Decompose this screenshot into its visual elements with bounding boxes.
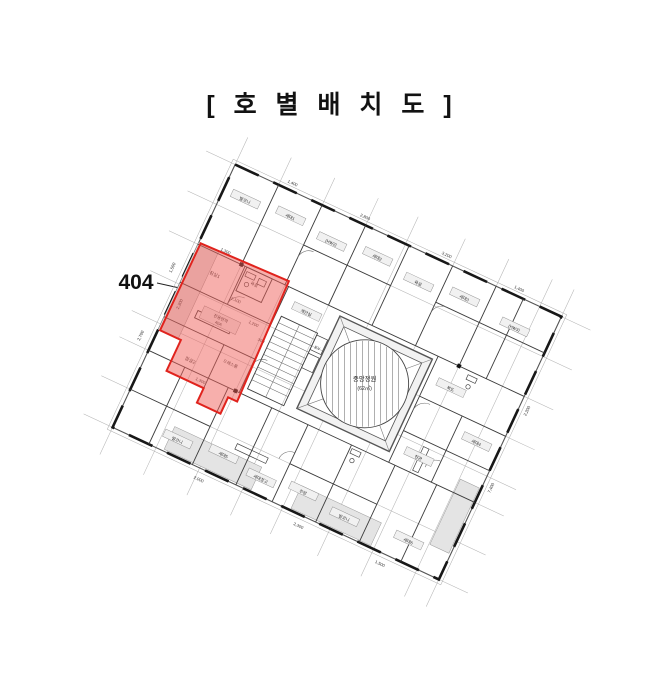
dimension-label: 1,400	[513, 284, 525, 293]
dimension-label: 2,000	[193, 475, 205, 484]
unit-404-highlight[interactable]	[139, 241, 293, 418]
room-label-pill: 세대6	[393, 530, 424, 551]
dimension-label: 1,400	[287, 179, 299, 188]
room-label-pill: 세대1	[275, 206, 306, 227]
room-label-pill: 복도	[435, 378, 466, 399]
room-label-pill: (HW2)	[316, 232, 347, 252]
floor-plan: EV 중앙정원 (62㎡) 발코니	[71, 124, 603, 620]
dimension-label: 3,200	[441, 250, 453, 259]
room-label-pill: 세대2	[362, 246, 393, 267]
dimension-label: 2,700	[136, 329, 145, 341]
core-label-line1: 중앙정원	[353, 374, 377, 383]
room-label-pill: 발코니	[230, 189, 261, 210]
dimension-label: 1,500	[168, 261, 177, 273]
room-label-pill: 세대4	[461, 432, 492, 453]
room-label-pill: 계단실	[291, 302, 322, 323]
room-label-pill: 욕실	[403, 272, 434, 293]
dimension-label: 1,500	[374, 559, 386, 568]
unit-404-label: 404	[118, 271, 153, 294]
dimension-label: 2,800	[359, 212, 371, 221]
floor-plan-canvas: [ 호 별 배 치 도 ] 404	[0, 0, 662, 700]
core-label-line2: (62㎡)	[357, 384, 372, 392]
dimension-label: 2,300	[293, 521, 305, 530]
core-void-circle	[306, 325, 423, 442]
room-label-pill: 세대3	[449, 287, 480, 308]
page-title: [ 호 별 배 치 도 ]	[206, 91, 457, 119]
unit-404-overlay-group	[139, 241, 293, 418]
elevator-label: EV	[314, 344, 321, 351]
